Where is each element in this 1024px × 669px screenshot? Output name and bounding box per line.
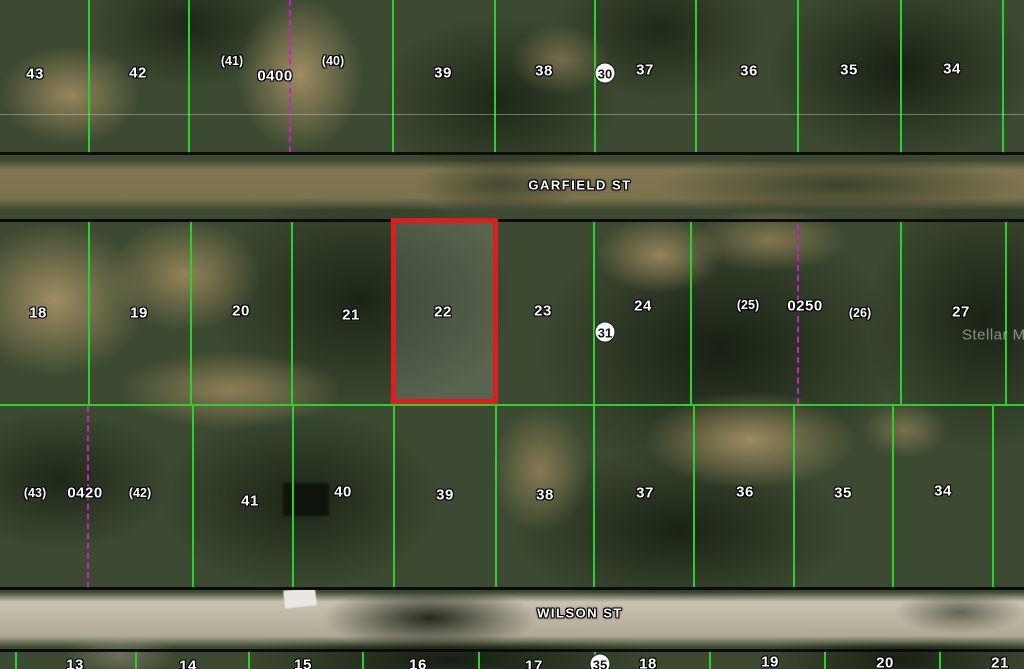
parcel-boundary-line <box>797 0 799 152</box>
lot-number: 36 <box>736 484 754 501</box>
lot-number-circled: 30 <box>595 63 616 84</box>
lot-number: (40) <box>322 54 344 68</box>
lot-number-circled: 35 <box>590 654 611 669</box>
lot-number: (43) <box>24 486 46 500</box>
lot-number: 0420 <box>67 485 102 502</box>
lot-number: (42) <box>129 486 151 500</box>
parcel-boundary-line <box>1002 0 1004 152</box>
parcel-boundary-line <box>494 0 496 152</box>
parcel-boundary-line <box>900 222 902 405</box>
lot-number: 21 <box>991 655 1009 669</box>
parcel-boundary-line <box>15 651 17 669</box>
lot-number: 34 <box>934 483 952 500</box>
parcel-boundary-line <box>292 406 294 588</box>
parcel-boundary-line <box>190 222 192 405</box>
parcel-boundary-line <box>135 651 137 669</box>
parcel-boundary-line <box>824 651 826 669</box>
parcel-boundary-line <box>593 406 595 588</box>
parcel-boundary-line <box>900 0 902 152</box>
lot-number: 16 <box>409 657 427 669</box>
lot-number: 37 <box>636 485 654 502</box>
aerial-imagery-background <box>0 0 1024 669</box>
lot-number: 39 <box>434 65 452 82</box>
building-white-roof <box>283 587 317 608</box>
lot-number: 0250 <box>787 298 822 315</box>
lot-number: 0400 <box>257 68 292 85</box>
street-edge-line <box>0 219 1024 222</box>
lot-number: 19 <box>761 654 779 669</box>
street-edge-line <box>0 587 1024 590</box>
street-edge-line <box>0 152 1024 155</box>
lot-number: (25) <box>737 298 759 312</box>
parcel-boundary-line <box>690 222 692 405</box>
lot-number: 42 <box>129 65 147 82</box>
parcel-boundary-line <box>992 406 994 588</box>
lot-number: 38 <box>535 63 553 80</box>
lot-number: 15 <box>294 657 312 669</box>
faint-boundary-line <box>0 114 1024 115</box>
parcel-boundary-line <box>495 406 497 588</box>
lot-number: 18 <box>639 656 657 669</box>
lot-number: 41 <box>241 493 259 510</box>
lot-number: (26) <box>849 306 871 320</box>
lot-number: 24 <box>634 298 652 315</box>
parcel-boundary-line <box>188 0 190 152</box>
lot-number: 36 <box>740 63 758 80</box>
lot-number: 19 <box>130 305 148 322</box>
street-edge-line <box>0 649 1024 652</box>
parcel-boundary-line <box>88 0 90 152</box>
parcel-boundary-line <box>693 406 695 588</box>
parcel-boundary-line <box>709 651 711 669</box>
lot-number: (41) <box>221 54 243 68</box>
parcel-boundary-line <box>393 406 395 588</box>
lot-number: 35 <box>840 62 858 79</box>
parcel-boundary-line <box>392 0 394 152</box>
lot-number: 21 <box>342 307 360 324</box>
lot-number: 20 <box>876 655 894 669</box>
parcel-map-image[interactable]: 4342(41)0400(40)393830373635341819202122… <box>0 0 1024 669</box>
lot-number: 14 <box>179 658 197 669</box>
parcel-boundary-line <box>248 651 250 669</box>
parcel-boundary-line <box>593 222 595 405</box>
street-label-garfield: GARFIELD ST <box>528 178 631 193</box>
lot-number: 35 <box>834 485 852 502</box>
stellar-mls-watermark: Stellar MLS <box>962 327 1024 344</box>
lot-number-circled: 31 <box>595 322 616 343</box>
building-shed <box>283 483 329 516</box>
parcel-boundary-line <box>192 406 194 588</box>
lot-number: 18 <box>29 305 47 322</box>
lot-number: 23 <box>534 303 552 320</box>
lot-number: 34 <box>943 61 961 78</box>
lot-number: 43 <box>26 66 44 83</box>
lot-number: 13 <box>66 657 84 669</box>
lot-number: 38 <box>536 487 554 504</box>
lot-number: 22 <box>434 304 452 321</box>
parcel-boundary-line <box>0 404 1024 406</box>
parcel-boundary-line <box>793 406 795 588</box>
parcel-boundary-line <box>892 406 894 588</box>
parcel-boundary-line <box>291 222 293 405</box>
lot-number: 20 <box>232 303 250 320</box>
street-label-wilson: WILSON ST <box>537 606 623 621</box>
lot-number: 39 <box>436 487 454 504</box>
lot-number: 40 <box>334 484 352 501</box>
parcel-boundary-line <box>695 0 697 152</box>
lot-number: 37 <box>636 62 654 79</box>
lot-number: 17 <box>525 658 543 669</box>
parcel-boundary-line <box>1005 222 1007 405</box>
parcel-boundary-line <box>362 651 364 669</box>
parcel-boundary-line <box>939 651 941 669</box>
parcel-boundary-line <box>478 651 480 669</box>
lot-number: 27 <box>952 304 970 321</box>
parcel-boundary-line <box>88 222 90 405</box>
